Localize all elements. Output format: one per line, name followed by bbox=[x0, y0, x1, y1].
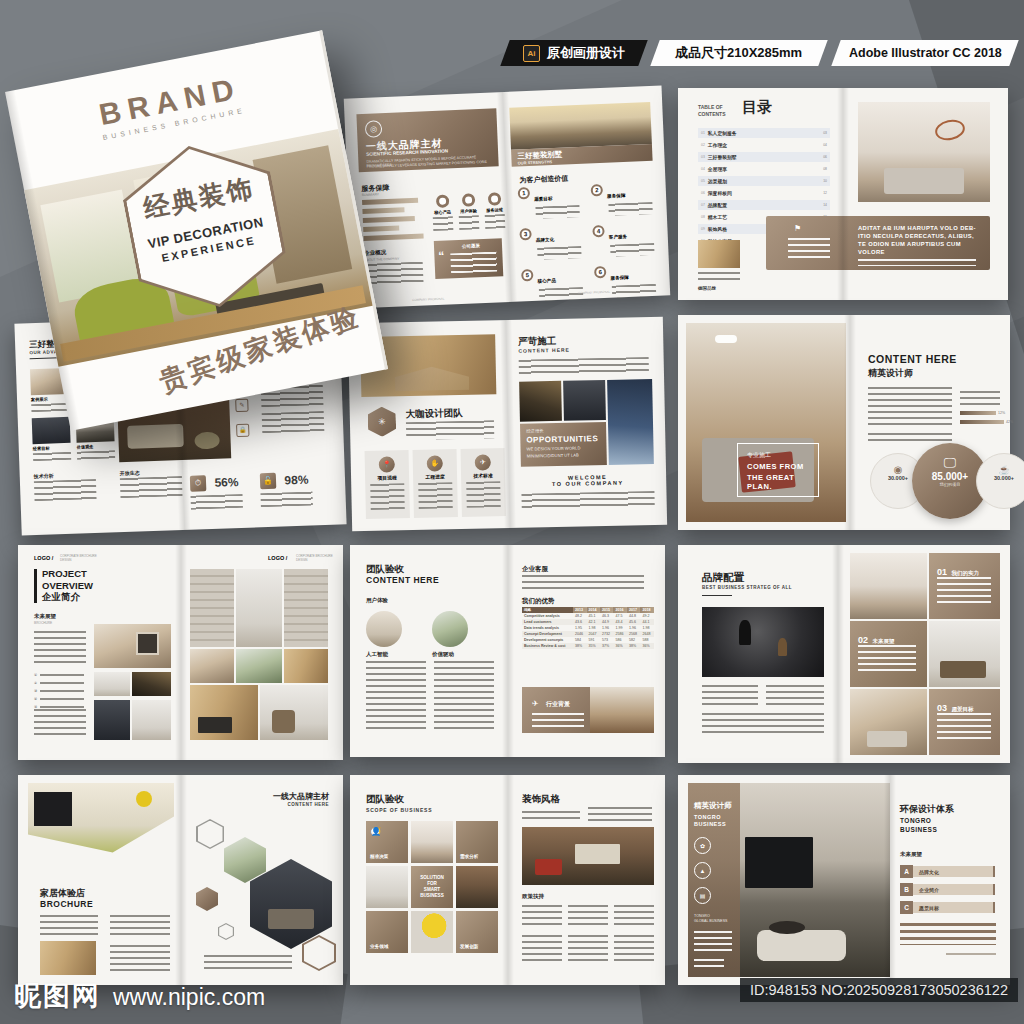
stat-col: 核心产品 bbox=[432, 194, 453, 231]
low-bed-shape bbox=[940, 661, 985, 678]
hand-icon: ✋ bbox=[427, 455, 443, 471]
text-lines bbox=[568, 905, 608, 929]
toc-item: 01私人定制服务03 bbox=[698, 128, 830, 138]
text-lines bbox=[519, 357, 649, 376]
photo-grid-bedroom2 bbox=[929, 621, 1000, 687]
presentation-icon: 🖵 bbox=[912, 455, 988, 471]
industry-label: 行业背景 bbox=[546, 700, 570, 709]
tile-field: ◎业务领域 bbox=[366, 911, 408, 953]
toc-eyebrow: TABLE OFCONTENTS bbox=[698, 104, 726, 118]
hexagon-badge: ✳ bbox=[368, 406, 397, 437]
elite-title-en: CONTENT HERE bbox=[868, 353, 957, 365]
logo-note: CORPORATE BROCHURE DESIGN bbox=[296, 555, 336, 562]
scope-grid: 🧭精准决策 ⚙需求分析 SOLUTIONFORSMARTBUSINESS ◎业务… bbox=[366, 821, 498, 953]
text-lines bbox=[365, 262, 424, 286]
spread-tongro: 精英设计师 TONGRO BUSINESS ✿ ▲ ▤ TONGRO GLOBA… bbox=[678, 775, 1010, 985]
value-grid: 1愿景目标 2服务保障 3品牌文化 4客户服务 5核心产品 6服务保障 bbox=[518, 182, 661, 302]
photo-pool bbox=[607, 379, 654, 465]
photo-bathroom bbox=[509, 102, 652, 150]
toc-item: 06深度样板间12 bbox=[698, 188, 830, 198]
image-id-badge: ID:948153 NO:20250928173050236122 bbox=[740, 978, 1018, 1002]
software-label: Adobe Illustrator CC 2018 bbox=[849, 46, 1002, 60]
store-right-title-block: 一线大品牌主材 CONTENT HERE bbox=[273, 791, 329, 807]
ux-section: 用户体验 bbox=[366, 597, 388, 604]
vision-quote-box: 公司愿景 “ bbox=[434, 238, 504, 279]
divider bbox=[702, 595, 732, 596]
photo-store-living bbox=[28, 783, 174, 895]
pin-icon: 📍 bbox=[379, 456, 395, 472]
bed-shape bbox=[867, 731, 907, 747]
photo-circle-interior bbox=[366, 611, 402, 647]
materials-header: ◎ 一线大品牌主材 SCIENTIFIC RESEARCH INNOVATION… bbox=[356, 108, 498, 172]
value-title: 为客户创造价值 bbox=[519, 173, 568, 185]
toc-item: 03三好整装别墅06 bbox=[698, 152, 830, 162]
text-lines bbox=[766, 685, 824, 705]
elite-title-cn: 精英设计师 bbox=[868, 367, 913, 380]
eco-sub1: TONGRO bbox=[900, 817, 931, 824]
value-item: 5核心产品 bbox=[521, 267, 587, 302]
future-section: 未来展望 bbox=[900, 851, 922, 858]
send-icon: ✈ bbox=[532, 699, 539, 708]
tag-b: B企业简介 bbox=[900, 883, 995, 896]
store-sub: BROCHURE bbox=[40, 899, 93, 909]
future-sub: BROCHURE bbox=[34, 621, 52, 625]
advantage-table: 战略 20132014 20152016 20172018 Competitiv… bbox=[522, 607, 654, 649]
lock-icon: 🔓 bbox=[260, 472, 277, 489]
logo-left: LOGO / bbox=[34, 555, 53, 561]
quote-title: 公司愿景 bbox=[462, 243, 480, 249]
value-item: 3品牌文化 bbox=[519, 226, 585, 261]
policy-section: 政策扶持 bbox=[522, 893, 544, 900]
island-shape bbox=[198, 717, 232, 734]
nipic-logo: 昵图网 bbox=[14, 978, 101, 1014]
bottom-label2: 开放生态 bbox=[120, 469, 140, 476]
stat-col: 用户体验 bbox=[458, 193, 479, 230]
watermark: 昵图网 www.nipic.com bbox=[14, 978, 265, 1014]
photo-tile-hall bbox=[366, 866, 408, 908]
sofa-shape bbox=[757, 930, 846, 961]
toc-banner: ⚑ ADITAT AB IUM HARUPTA VOLO DEB-ITIO NE… bbox=[766, 216, 990, 270]
spread-brand-materials: ◎ 一线大品牌主材 SCIENTIFIC RESEARCH INNOVATION… bbox=[344, 85, 671, 308]
text-lines bbox=[522, 905, 562, 929]
fireplace-shape bbox=[136, 632, 158, 655]
text-lines bbox=[532, 713, 584, 727]
strengths-sub: OUR STRENGTHS bbox=[517, 159, 552, 165]
stat-circle-right: ☕ 30.000+ bbox=[976, 453, 1024, 509]
text-lines bbox=[522, 575, 644, 591]
sofa-shape bbox=[127, 423, 184, 448]
bookmark-icon: ⚑ bbox=[794, 224, 801, 233]
text-lines bbox=[204, 955, 292, 973]
hexagon-outline-tiny bbox=[218, 923, 234, 940]
toc-item: 04全屋理享08 bbox=[698, 164, 830, 174]
text-lines bbox=[110, 915, 170, 935]
hexagon-photo-small bbox=[224, 837, 266, 883]
opportunities-box: 经济增长 OPPORTUNITIES WE DESIGN YOUR WORLD … bbox=[520, 422, 607, 467]
stat-col: 服务运维 bbox=[484, 192, 505, 229]
spread-brand-config: 品牌配置 BEST BUSINESS STRATEG OF ALL 01 我们的… bbox=[678, 545, 1010, 763]
bottom-label1: 技术分析 bbox=[34, 472, 54, 479]
photo-tile-helmet bbox=[411, 911, 453, 953]
toc-item: 05远景规划10 bbox=[698, 176, 830, 186]
stat-value: 98% bbox=[284, 472, 309, 487]
photo-grid-bedroom1 bbox=[850, 553, 927, 619]
text-lines bbox=[868, 387, 952, 429]
spread-scope: 团队验收 SCOPE OF BUSINESS 🧭精准决策 ⚙需求分析 SOLUT… bbox=[350, 775, 665, 985]
config-block-01: 01 我们的实力 bbox=[929, 553, 1000, 619]
photo-mid1 bbox=[190, 649, 234, 683]
text-lines bbox=[366, 661, 426, 733]
stat-value: 56% bbox=[214, 475, 239, 490]
wall-decor bbox=[933, 117, 967, 143]
photo-kitchen-small bbox=[40, 941, 96, 975]
numbered-list: ① ② ③ ④ ⑤ bbox=[34, 673, 84, 709]
config-block-02: 02 未来展望 bbox=[850, 621, 927, 687]
tag-c: C愿景目标 bbox=[900, 901, 995, 914]
photo-grid-bedroom3 bbox=[850, 689, 927, 755]
config-sub: BEST BUSINESS STRATEG OF ALL bbox=[702, 585, 792, 590]
text-lines bbox=[406, 420, 494, 440]
text-lines bbox=[450, 251, 497, 273]
text-lines bbox=[120, 476, 183, 498]
chess-piece bbox=[778, 638, 788, 656]
target-icon: ◎ bbox=[365, 120, 383, 138]
tag-a: A品牌文化 bbox=[900, 865, 995, 878]
scope-title: 团队验收 bbox=[366, 793, 404, 806]
title-bar bbox=[34, 569, 37, 603]
footer-label: COMPANY PROPOSAL bbox=[412, 297, 444, 302]
quote-mark-icon: “ bbox=[438, 249, 445, 263]
photo-mid2 bbox=[236, 649, 282, 683]
award-icon: ✿ bbox=[694, 837, 711, 854]
badge-original-design: Ai 原创画册设计 bbox=[500, 40, 647, 66]
badge-size: 成品尺寸210X285mm bbox=[650, 40, 827, 66]
text-lines bbox=[34, 631, 86, 667]
text-lines bbox=[521, 491, 654, 510]
text-lines-brown bbox=[900, 923, 996, 945]
eco-sub2: BUSINESS bbox=[900, 826, 937, 833]
opp-sub1: WE DESIGN YOUR WORLD bbox=[526, 445, 580, 451]
opp-title: OPPORTUNITIES bbox=[526, 434, 598, 445]
text-lines bbox=[788, 238, 830, 260]
photo-banner-bedroom bbox=[590, 687, 654, 733]
coffee-icon: ☕ bbox=[977, 465, 1024, 475]
yellow-accent-dot bbox=[136, 791, 152, 807]
hexagon-outline-brown bbox=[302, 935, 336, 971]
photo-kitchen bbox=[190, 685, 258, 740]
eco-title: 环保设计体系 bbox=[900, 803, 954, 816]
desk-shape bbox=[395, 366, 470, 392]
overview-title: PROJECT OVERVIEW 企业简介 bbox=[42, 568, 93, 603]
text-lines bbox=[34, 709, 86, 739]
person-icon: 👤 bbox=[371, 827, 381, 836]
bed-shape bbox=[884, 168, 963, 194]
tv-shape bbox=[34, 792, 72, 826]
photo-mid3 bbox=[284, 649, 328, 683]
plane-icon: ✈ bbox=[475, 454, 491, 470]
config-title: 品牌配置 bbox=[702, 571, 744, 585]
photo-tile-bedroom bbox=[411, 821, 453, 863]
team-title: 大咖设计团队 bbox=[406, 407, 463, 421]
size-label: 成品尺寸210X285mm bbox=[675, 44, 802, 62]
text-lines bbox=[960, 391, 1000, 405]
armchair-shape bbox=[272, 710, 295, 733]
text-lines bbox=[434, 661, 494, 733]
photo-small2 bbox=[132, 672, 171, 696]
pen-icon: ✎ bbox=[235, 399, 248, 412]
building-icon: ▤ bbox=[694, 887, 711, 904]
text-lines bbox=[702, 713, 824, 737]
text-lines bbox=[614, 905, 654, 929]
table-shape bbox=[194, 432, 219, 450]
tv-screen bbox=[745, 837, 814, 887]
text-lines bbox=[868, 433, 952, 443]
text-lines bbox=[522, 935, 562, 965]
text-lines bbox=[522, 811, 580, 821]
spread-toc: TABLE OFCONTENTS 目录 01私人定制服务03 02工作理念04 … bbox=[678, 88, 1008, 300]
spread-project-overview: LOGO / CORPORATE BROCHURE DESIGN LOGO / … bbox=[18, 545, 343, 760]
stat-columns: 核心产品 用户体验 服务运维 bbox=[432, 192, 505, 231]
photo-stone-wall2 bbox=[284, 569, 328, 647]
kitchen-cabinets bbox=[575, 844, 620, 864]
hexagon-outline bbox=[196, 819, 224, 849]
photo-lounge bbox=[260, 685, 328, 740]
photo-circle-office bbox=[432, 611, 468, 647]
photo-classic-living bbox=[94, 624, 171, 668]
banner-text: ADITAT AB IUM HARUPTA VOLO DEB-ITIO NECU… bbox=[858, 224, 976, 256]
value-item: 1愿景目标 bbox=[518, 185, 584, 220]
photo-stone-wall1 bbox=[190, 569, 234, 647]
spread-elite-designer: 专业施工 COMES FROM THE GREAT PLAN. CONTENT … bbox=[678, 315, 1010, 530]
text-lines bbox=[40, 915, 98, 935]
toc-item: 02工作理念04 bbox=[698, 140, 830, 150]
original-design-label: 原创画册设计 bbox=[547, 44, 625, 62]
brand-label: 德国品牌 bbox=[698, 286, 716, 291]
team-card: 📍 项目流程 bbox=[365, 450, 410, 519]
text-lines bbox=[698, 272, 740, 284]
construction-sub: CONTENT HERE bbox=[518, 347, 570, 354]
text-lines bbox=[858, 259, 976, 266]
badge-software: Adobe Illustrator CC 2018 bbox=[831, 40, 1018, 66]
about-sub: ABOUT THE COMPANY bbox=[364, 257, 399, 262]
bed-shape bbox=[268, 909, 314, 929]
future-section: 未来展望 bbox=[34, 613, 56, 620]
service-sub: SUMMARY bbox=[362, 192, 379, 197]
spread-acceptance: 团队验收 CONTENT HERE 用户体验 人工智能 价值驱动 企业客服 我们… bbox=[350, 545, 665, 757]
red-sofa-shape bbox=[535, 859, 561, 874]
stat-block2: 🔓 98% bbox=[260, 469, 313, 507]
text-lines bbox=[262, 411, 325, 433]
text-lines bbox=[110, 945, 170, 971]
text-lines bbox=[702, 685, 758, 705]
logo-right: LOGO / bbox=[268, 555, 287, 561]
photo-bedroom bbox=[858, 102, 990, 202]
service-bars bbox=[362, 198, 424, 241]
logo-note: CORPORATE BROCHURE DESIGN bbox=[60, 555, 100, 562]
lock-icon: 🔒 bbox=[236, 424, 249, 437]
tile-solution: SOLUTIONFORSMARTBUSINESS bbox=[411, 866, 453, 908]
tongro-sidebar: 精英设计师 TONGRO BUSINESS ✿ ▲ ▤ TONGRO GLOBA… bbox=[688, 783, 740, 977]
spread-experience-store: 家居体验店 BROCHURE 一线大品牌主材 CONTENT HERE bbox=[18, 775, 343, 985]
text-lines bbox=[34, 479, 97, 501]
value-item: 2服务保障 bbox=[591, 182, 657, 217]
spread-design-team: ✳ 大咖设计团队 📍 项目流程 ✋ 工程进度 ✈ 技术标准 严苛施工 CONTE… bbox=[348, 317, 667, 532]
photo-tall-center bbox=[236, 569, 282, 647]
style-title: 装饰风格 bbox=[522, 793, 560, 806]
team-cards: 📍 项目流程 ✋ 工程进度 ✈ 技术标准 bbox=[365, 448, 506, 519]
acceptance-sub: CONTENT HERE bbox=[366, 575, 439, 585]
snowflake-icon: ✳ bbox=[368, 406, 397, 437]
divider bbox=[946, 953, 996, 955]
value-label: 价值驱动 bbox=[432, 651, 454, 658]
toc-title: 目录 bbox=[742, 98, 772, 117]
industry-banner: ✈ 行业背景 bbox=[522, 687, 654, 733]
photo-small1 bbox=[94, 672, 130, 696]
photo-showroom-small bbox=[698, 240, 740, 268]
brochure-cover: BRAND BUSINESS BROCHURE 经典装饰 VIP DECORAT… bbox=[5, 30, 388, 430]
ai-label: 人工智能 bbox=[366, 651, 388, 658]
service-section: 企业客服 bbox=[522, 565, 548, 574]
value-item: 4客户服务 bbox=[592, 223, 658, 258]
team-card: ✋ 工程进度 bbox=[413, 449, 458, 518]
hexagon-filled-small bbox=[196, 887, 218, 911]
photo-tile-loft bbox=[456, 866, 498, 908]
mountain-icon: ▲ bbox=[694, 862, 711, 879]
photo-small4 bbox=[132, 700, 171, 740]
photo-chess bbox=[702, 607, 824, 677]
clock-icon: ⏱ bbox=[190, 475, 207, 492]
text-lines bbox=[614, 935, 654, 965]
chess-piece bbox=[739, 620, 751, 645]
nipic-url: www.nipic.com bbox=[113, 984, 265, 1011]
config-block-03: 03 愿景目标 bbox=[929, 689, 1000, 755]
toc-item: 07品牌配置14 bbox=[698, 200, 830, 210]
opp-label: 经济增长 bbox=[526, 428, 544, 433]
text-lines bbox=[588, 807, 652, 821]
tile-analysis: ⚙需求分析 bbox=[456, 821, 498, 863]
text-lines bbox=[568, 935, 608, 965]
welcome-block: WELCOME TO OUR COMPANY bbox=[521, 473, 654, 488]
stat-block1: ⏱ 56% bbox=[190, 472, 243, 510]
photo-loft-kitchen bbox=[522, 827, 654, 885]
tile-innovation: 👤发展创新 bbox=[456, 911, 498, 953]
plan-overlay-box: 专业施工 COMES FROM THE GREAT PLAN. bbox=[737, 443, 819, 497]
photo-evening1 bbox=[519, 381, 562, 422]
opp-sub2: MINIMINCIDIDUNT UT LAB bbox=[527, 453, 579, 459]
table-row: Business Review & cost38%35%37%36%38%36% bbox=[522, 643, 654, 649]
adobe-illustrator-icon: Ai bbox=[523, 45, 540, 62]
mini-bars: 12% 42% bbox=[960, 411, 1013, 424]
scope-sub: SCOPE OF BUSINESS bbox=[366, 807, 432, 813]
photo-evening2 bbox=[563, 380, 606, 421]
about-title: 企业概况 bbox=[364, 249, 386, 257]
advantage-section: 我们的优势 bbox=[522, 597, 555, 606]
team-card: ✈ 技术标准 bbox=[461, 448, 506, 517]
ceiling-light bbox=[715, 335, 737, 343]
photo-small3 bbox=[94, 700, 130, 740]
thumb: 经营目标 bbox=[32, 417, 71, 461]
